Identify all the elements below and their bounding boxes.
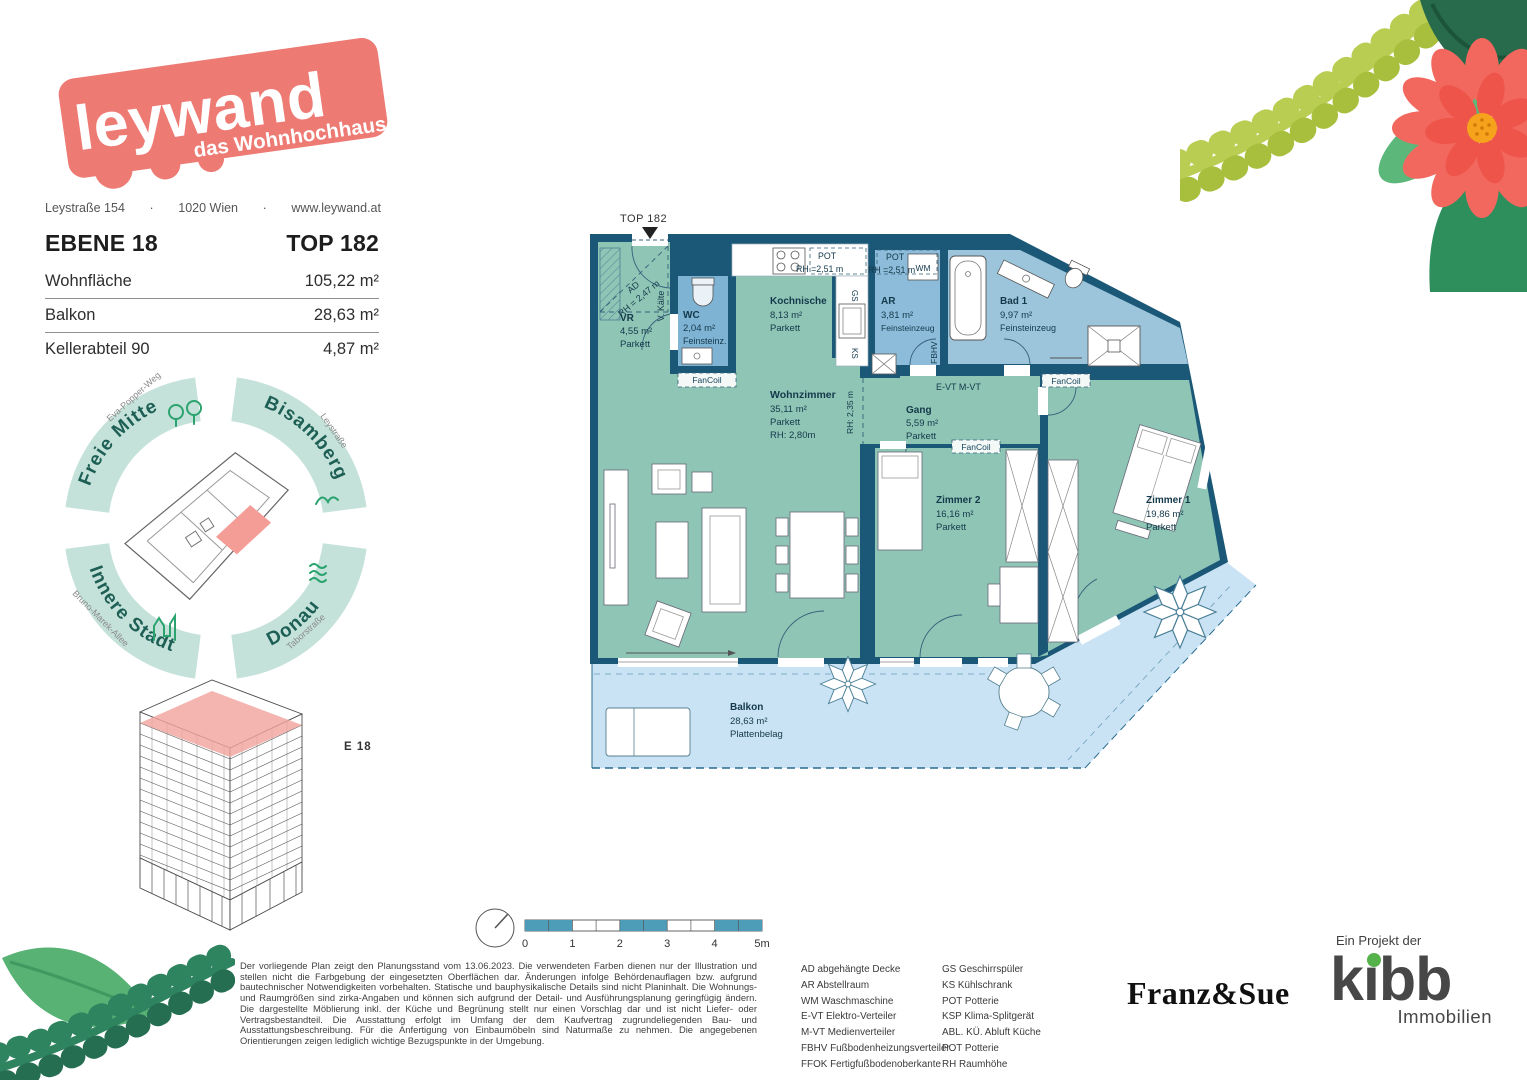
legend-item: WM Waschmaschine bbox=[801, 994, 942, 1010]
svg-text:4,55 m²: 4,55 m² bbox=[620, 326, 652, 337]
unit-spec-table: EBENE 18 TOP 182 Wohnfläche 105,22 m² Ba… bbox=[45, 230, 379, 366]
scale-tick: 0 bbox=[522, 938, 528, 950]
scale-tick: 4 bbox=[712, 938, 718, 950]
toilet-icon bbox=[692, 278, 714, 306]
tv-icon bbox=[610, 504, 615, 568]
site-plan-mini bbox=[116, 440, 309, 613]
spec-value: 28,63 m² bbox=[314, 306, 379, 325]
lounger-icon bbox=[606, 708, 690, 756]
north-indicator-icon bbox=[476, 909, 514, 947]
orientation-compass: Freie Mitte Bisamberg Innere Stadt Donau… bbox=[58, 370, 374, 686]
wardrobe-icon bbox=[1048, 460, 1078, 642]
website-link[interactable]: www.leywand.at bbox=[291, 201, 381, 215]
legend-item: FBHV Fußbodenheizungsverteiler bbox=[801, 1041, 942, 1057]
svg-text:16,16 m²: 16,16 m² bbox=[936, 509, 974, 520]
fancoil-label: FanCoil bbox=[1051, 376, 1080, 386]
spec-row-wohnflaeche: Wohnfläche 105,22 m² bbox=[45, 265, 379, 299]
dining-table-icon bbox=[790, 512, 844, 598]
legend-item: POT Potterie bbox=[942, 1041, 1041, 1057]
svg-text:RH: 2,80m: RH: 2,80m bbox=[770, 430, 815, 441]
svg-text:19,86 m²: 19,86 m² bbox=[1146, 509, 1184, 520]
spec-row-balkon: Balkon 28,63 m² bbox=[45, 299, 379, 333]
level-title: EBENE 18 bbox=[45, 230, 158, 257]
svg-text:9,97 m²: 9,97 m² bbox=[1000, 310, 1032, 321]
svg-text:5,59 m²: 5,59 m² bbox=[906, 418, 938, 429]
flower-icon bbox=[1392, 38, 1527, 218]
svg-text:Parkett: Parkett bbox=[620, 339, 650, 350]
spec-value: 105,22 m² bbox=[305, 272, 379, 291]
svg-text:Bad 1: Bad 1 bbox=[1000, 296, 1028, 307]
desk-icon bbox=[1000, 567, 1038, 623]
building-floor-label: E 18 bbox=[344, 741, 372, 753]
kibb-dot-icon bbox=[1367, 953, 1381, 967]
entry-marker-label: TOP 182 bbox=[620, 213, 667, 225]
scale-tick: 1 bbox=[569, 938, 575, 950]
shaft-icon bbox=[872, 354, 896, 374]
legend-item: M-VT Medienverteiler bbox=[801, 1025, 942, 1041]
annotation-evt-mvt: E-VT M-VT bbox=[936, 382, 981, 392]
scale-tick: 5m bbox=[754, 938, 769, 950]
svg-text:Parkett: Parkett bbox=[770, 323, 800, 334]
legend-item: FFOK Fertigfußbodenoberkante bbox=[801, 1057, 942, 1073]
svg-text:Gang: Gang bbox=[906, 405, 932, 416]
svg-text:Zimmer 1: Zimmer 1 bbox=[1146, 495, 1191, 506]
shower-icon bbox=[1088, 326, 1140, 366]
legend-item: AR Abstellraum bbox=[801, 978, 942, 994]
annotation-pot: POT bbox=[818, 251, 837, 261]
legend-item: ABL. KÜ. Abluft Küche bbox=[942, 1025, 1041, 1041]
svg-text:Plattenbelag: Plattenbelag bbox=[730, 729, 783, 740]
svg-text:Parkett: Parkett bbox=[770, 417, 800, 428]
svg-text:Parkett: Parkett bbox=[1146, 522, 1176, 533]
svg-text:Zimmer 2: Zimmer 2 bbox=[936, 495, 981, 506]
svg-text:Kochnische: Kochnische bbox=[770, 296, 827, 307]
fancoil-label: FanCoil bbox=[961, 442, 990, 452]
svg-text:35,11 m²: 35,11 m² bbox=[770, 404, 807, 415]
legend-item: E-VT Elektro-Verteiler bbox=[801, 1009, 942, 1025]
washbasin-icon bbox=[682, 348, 712, 364]
developer-wordmark: kıbb bbox=[1330, 950, 1492, 1008]
scale-bar: 0 1 2 3 4 5m bbox=[470, 900, 780, 960]
fancoil-label: FanCoil bbox=[692, 375, 721, 385]
legend-item: KS Kühlschrank bbox=[942, 978, 1041, 994]
annotation-v-kaelte: V. Kälte bbox=[656, 291, 666, 322]
svg-text:WC: WC bbox=[683, 310, 700, 321]
abbreviation-legend: AD abgehängte Decke AR Abstellraum WM Wa… bbox=[801, 962, 1041, 1073]
decorative-plants-bottom-left bbox=[0, 918, 235, 1080]
annotation-rh235: RH: 2,35 m bbox=[845, 391, 855, 434]
scale-bar-graphic bbox=[525, 920, 762, 931]
spec-row-keller: Kellerabteil 90 4,87 m² bbox=[45, 333, 379, 366]
svg-text:Parkett: Parkett bbox=[936, 522, 966, 533]
spec-label: Kellerabteil 90 bbox=[45, 340, 150, 359]
address-line: Leystraße 154 · 1020 Wien · www.leywand.… bbox=[45, 201, 381, 215]
brand-logo: leywand das Wohnhochhaus bbox=[40, 16, 404, 200]
legend-item: AD abgehängte Decke bbox=[801, 962, 942, 978]
unit-title: TOP 182 bbox=[286, 230, 379, 257]
svg-text:8,13 m²: 8,13 m² bbox=[770, 310, 802, 321]
svg-text:AR: AR bbox=[881, 296, 896, 307]
svg-text:Parkett: Parkett bbox=[906, 431, 936, 442]
svg-text:Feinsteinzeug: Feinsteinzeug bbox=[1000, 323, 1056, 333]
legend-item: RH Raumhöhe bbox=[942, 1057, 1041, 1073]
building-isometric: E 18 bbox=[112, 650, 402, 955]
logo-banner: leywand das Wohnhochhaus bbox=[57, 36, 392, 195]
separator-dot: · bbox=[263, 201, 267, 215]
disclaimer-text: Der vorliegende Plan zeigt den Planungss… bbox=[240, 961, 757, 1047]
architect-logo: Franz&Sue bbox=[1127, 975, 1290, 1012]
address-street: Leystraße 154 bbox=[45, 201, 125, 215]
svg-text:Feinsteinz.: Feinsteinz. bbox=[683, 336, 727, 346]
legend-item: GS Geschirrspüler bbox=[942, 962, 1041, 978]
legend-column-1: AD abgehängte Decke AR Abstellraum WM Wa… bbox=[801, 962, 942, 1073]
svg-text:Balkon: Balkon bbox=[730, 702, 763, 713]
scale-tick: 2 bbox=[617, 938, 623, 950]
annotation-gs: GS bbox=[850, 290, 859, 302]
decorative-plants-top-right bbox=[1180, 0, 1527, 300]
svg-text:3,81 m²: 3,81 m² bbox=[881, 310, 913, 321]
annotation-fbhv: FBHV bbox=[929, 341, 939, 364]
annotation-ks: KS bbox=[850, 348, 859, 359]
svg-text:Wohnzimmer: Wohnzimmer bbox=[770, 389, 836, 401]
separator-dot: · bbox=[150, 201, 154, 215]
legend-item: POT Potterie bbox=[942, 994, 1041, 1010]
floor-plan: FanCoil FanCoil FanCoil bbox=[580, 212, 1280, 797]
spec-value: 4,87 m² bbox=[323, 340, 379, 359]
svg-text:2,04 m²: 2,04 m² bbox=[683, 323, 715, 334]
legend-column-2: GS Geschirrspüler KS Kühlschrank POT Pot… bbox=[942, 962, 1041, 1073]
svg-text:28,63 m²: 28,63 m² bbox=[730, 716, 768, 727]
annotation-pot-rh: RH =2,51 m bbox=[796, 264, 843, 274]
spec-label: Wohnfläche bbox=[45, 272, 132, 291]
scale-tick: 3 bbox=[664, 938, 670, 950]
annotation-wm: WM bbox=[915, 263, 930, 273]
annotation-pot-rh: RH =2,51 m bbox=[868, 265, 915, 275]
address-city: 1020 Wien bbox=[178, 201, 238, 215]
annotation-pot: POT bbox=[886, 252, 905, 262]
developer-logo: Ein Projekt der kıbb Immobilien bbox=[1330, 933, 1492, 1028]
svg-text:Feinsteinzeug: Feinsteinzeug bbox=[881, 323, 935, 333]
spec-label: Balkon bbox=[45, 306, 95, 325]
legend-item: KSP Klima-Splitgerät bbox=[942, 1009, 1041, 1025]
